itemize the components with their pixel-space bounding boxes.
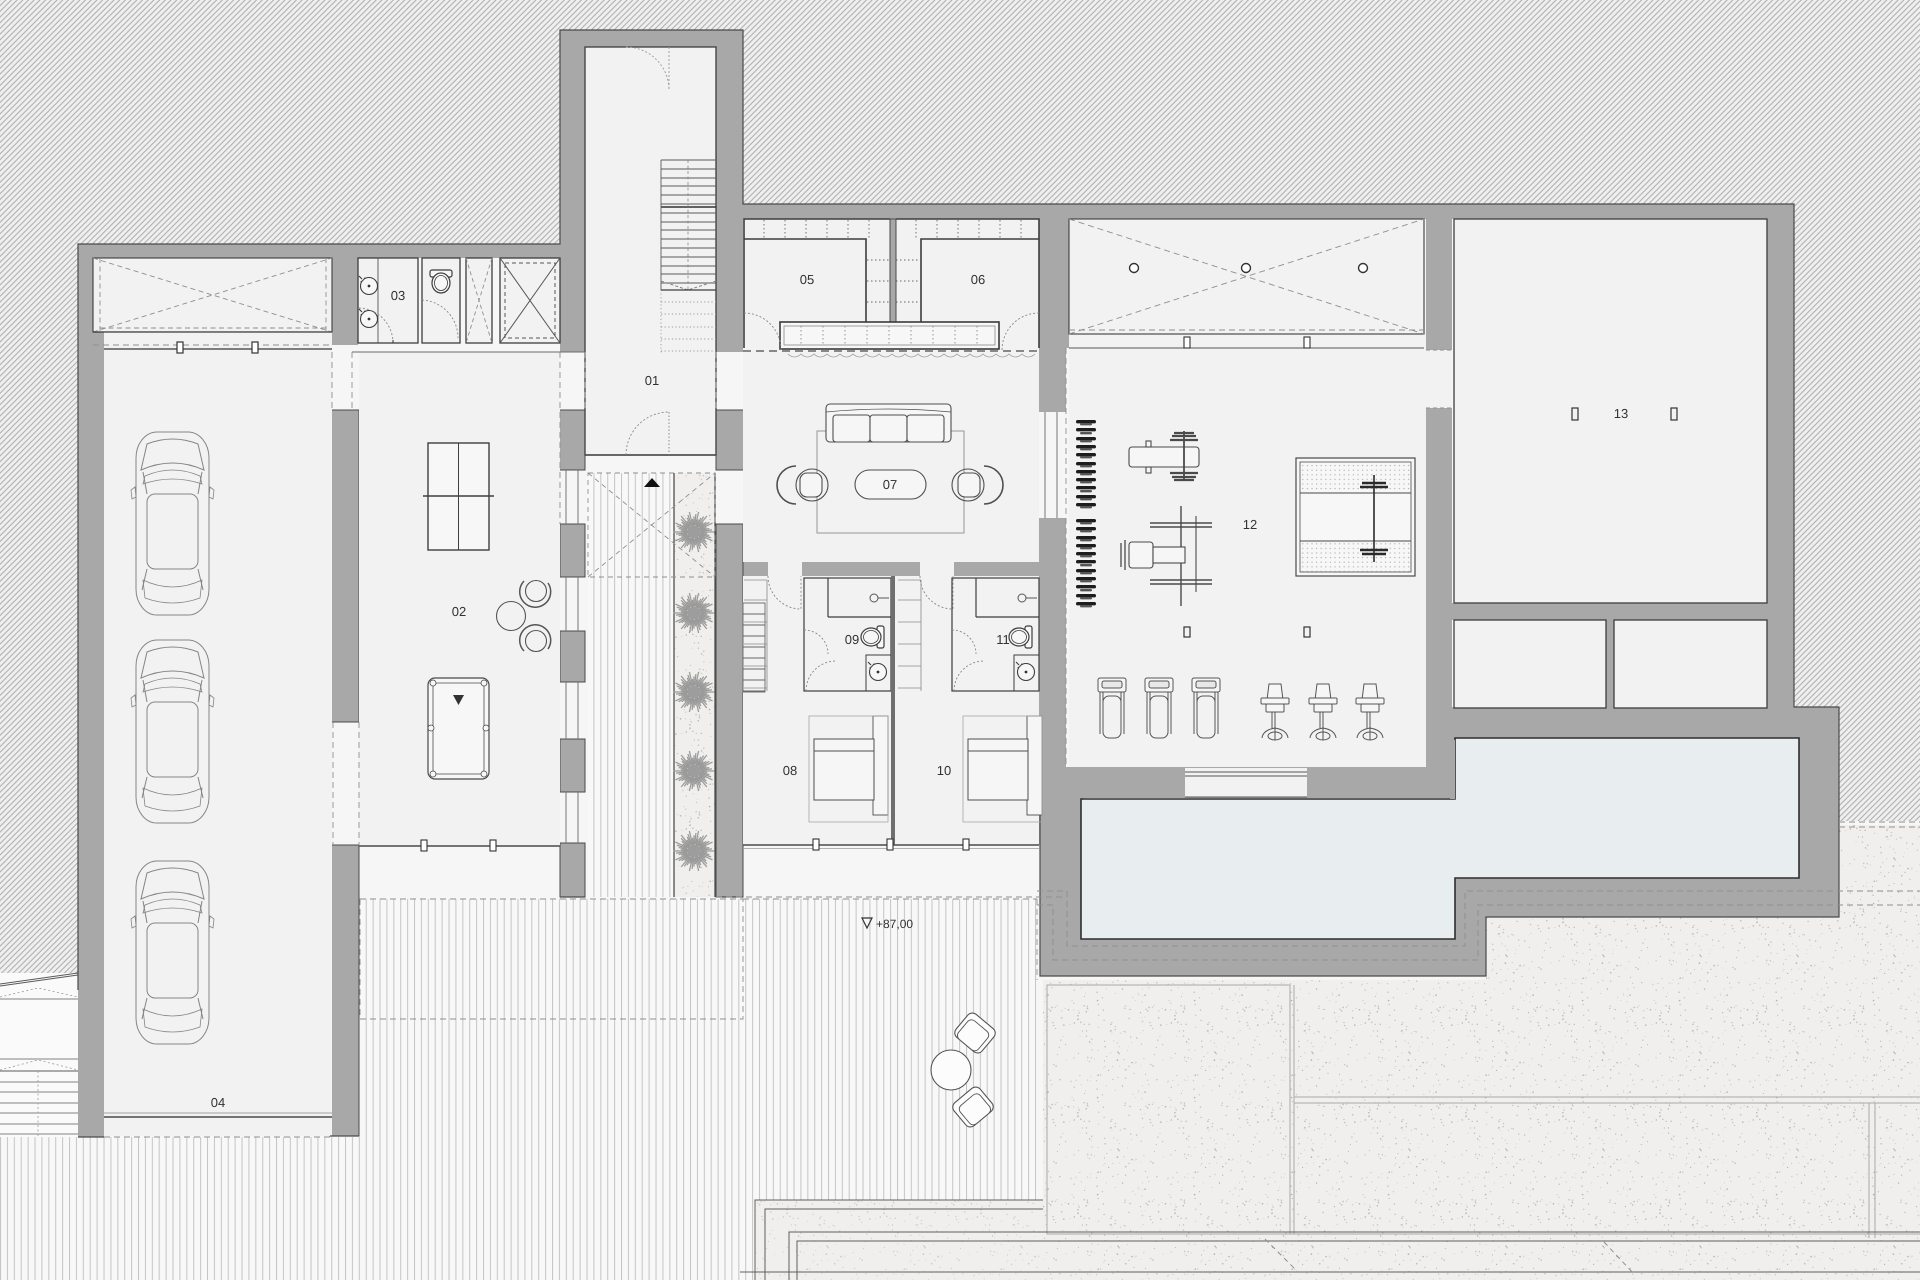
svg-text:07: 07	[883, 477, 897, 492]
svg-text:03: 03	[391, 288, 405, 303]
svg-text:+87,00: +87,00	[876, 917, 913, 931]
svg-text:08: 08	[783, 763, 797, 778]
svg-text:12: 12	[1243, 517, 1257, 532]
svg-text:10: 10	[937, 763, 951, 778]
svg-text:11: 11	[996, 632, 1010, 647]
svg-text:04: 04	[211, 1095, 225, 1110]
svg-text:09: 09	[845, 632, 859, 647]
svg-text:02: 02	[452, 604, 466, 619]
svg-text:05: 05	[800, 272, 814, 287]
svg-text:06: 06	[971, 272, 985, 287]
svg-text:13: 13	[1614, 406, 1628, 421]
svg-text:01: 01	[645, 373, 659, 388]
